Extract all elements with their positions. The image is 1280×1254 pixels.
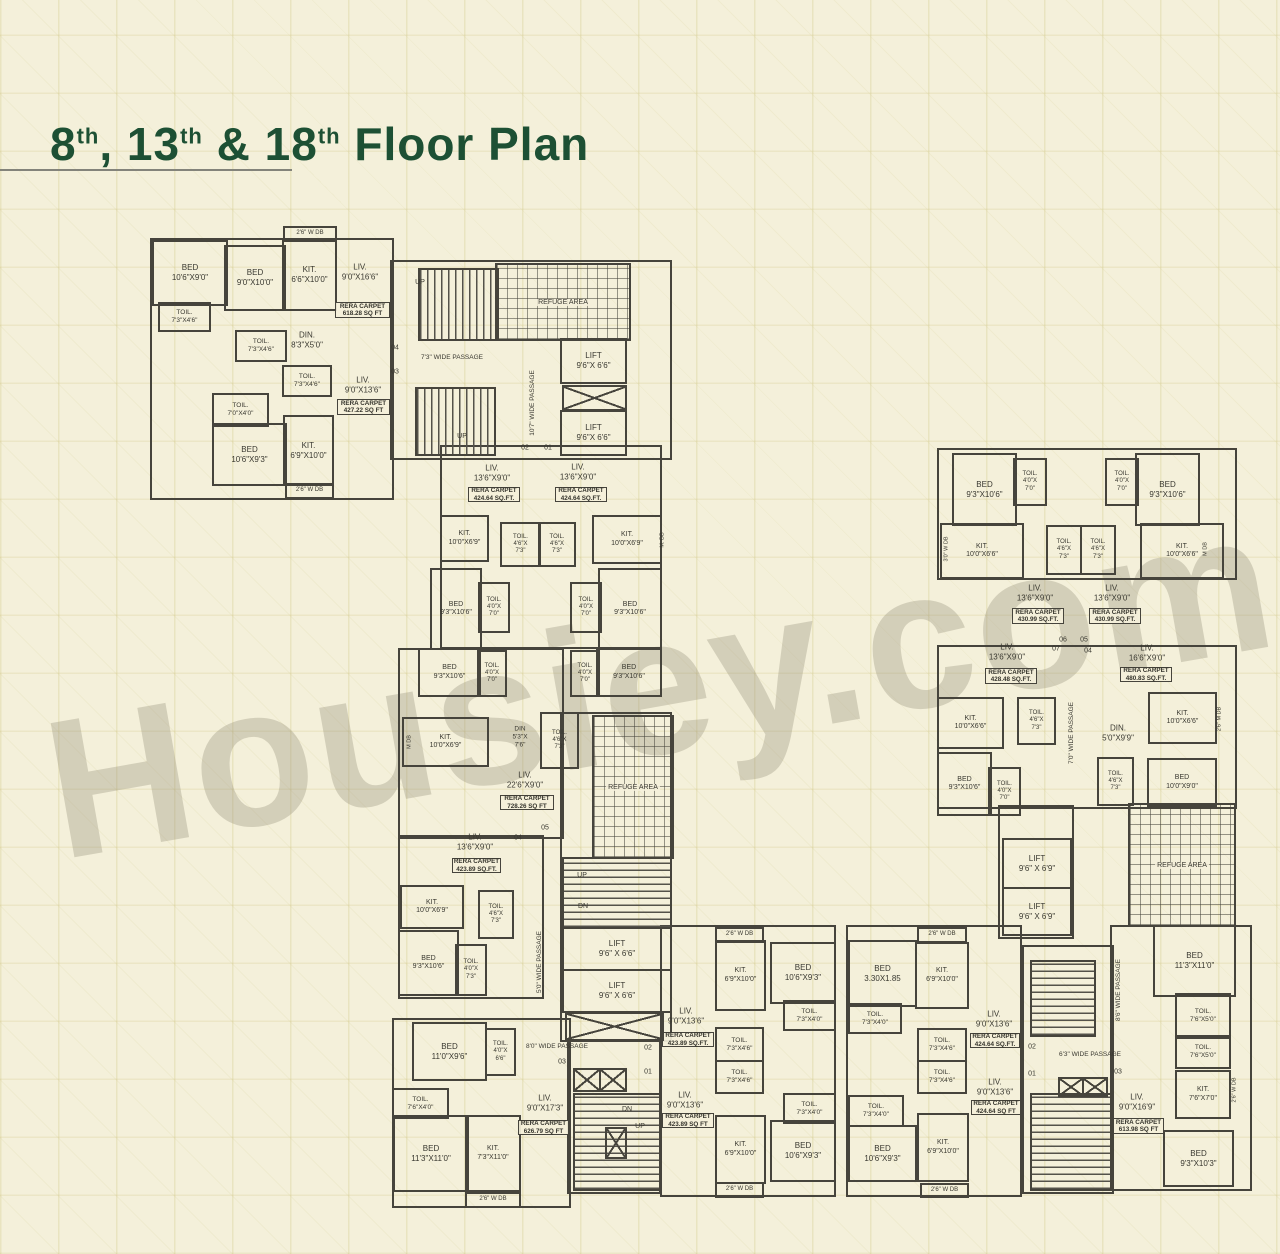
room-toil: TOIL. 4'6"X 7'3" bbox=[1017, 697, 1056, 745]
refuge-area-label: REFUGE AREA bbox=[606, 784, 660, 791]
room-bed: BED 9'3"X10'6" bbox=[952, 453, 1017, 526]
room-kit: KIT. 10'0"X6'6" bbox=[940, 523, 1024, 579]
room-label: TOIL. 4'0"X 7'0" bbox=[997, 781, 1012, 803]
room-label: TOIL. 4'6"X 7'3" bbox=[1108, 771, 1123, 793]
flat-number: 01 bbox=[644, 1069, 652, 1076]
area-label: LIV. 9'0"X13'6" bbox=[345, 375, 381, 394]
rera-carpet-box: RERA CARPET 728.26 SQ FT bbox=[500, 795, 554, 810]
stair-direction-label: UP bbox=[457, 433, 467, 441]
rera-carpet-box: RERA CARPET 424.64 SQ.FT. bbox=[555, 487, 607, 502]
stair-direction-label: DN bbox=[578, 903, 588, 911]
room-label: TOIL. 7'3"X4'6" bbox=[727, 1037, 753, 1053]
room-wdb: 2'6" W DB bbox=[285, 483, 334, 499]
room-bed: BED 9'3"X10'6" bbox=[418, 648, 481, 697]
room-toil: TOIL. 4'6"X 7'3" bbox=[1097, 757, 1134, 806]
area-label: LIV. 13'6"X9'0" bbox=[1094, 583, 1130, 602]
room-label: BED 9'3"X10'6" bbox=[434, 664, 466, 681]
room-toil: TOIL. 7'6"X5'0" bbox=[1175, 993, 1231, 1039]
room-toil: TOIL. 4'6"X 7'3" bbox=[538, 522, 576, 567]
room-label: KIT. 10'0"X6'9" bbox=[449, 530, 481, 547]
lift-room: LIFT 9'6" X 6'6" bbox=[562, 969, 672, 1013]
room-toil: TOIL. 7'3"X4'6" bbox=[917, 1028, 967, 1062]
flat-number: 04 bbox=[1084, 648, 1092, 655]
area-label: LIV. 16'6"X9'0" bbox=[1129, 643, 1165, 662]
room-toil: TOIL. 4'0"X 7'0" bbox=[1013, 458, 1047, 506]
rera-carpet-box: RERA CARPET 618.28 SQ FT bbox=[335, 302, 390, 318]
room-label: BED 9'3"X10'6" bbox=[1149, 480, 1185, 499]
room-label: TOIL. 4'0"X 7'0" bbox=[579, 597, 594, 619]
stair-direction-label: DN bbox=[622, 1106, 632, 1114]
room-label: TOIL. 4'6"X 7'3" bbox=[513, 534, 528, 556]
room-label: KIT. 6'9"X10'0" bbox=[725, 1141, 757, 1158]
room-label: TOIL. 4'0"X 7'0" bbox=[487, 597, 502, 619]
room-label: KIT. 10'0"X6'6" bbox=[1167, 710, 1199, 727]
room-label: TOIL. 4'6"X 7'3" bbox=[550, 534, 565, 556]
elevator-shaft bbox=[1058, 1077, 1084, 1097]
room-label: BED 9'3"X10'3" bbox=[1180, 1149, 1216, 1168]
room-bed: BED 9'3"X10'6" bbox=[598, 568, 662, 650]
room-label: KIT. 6'6"X10'0" bbox=[291, 265, 327, 284]
room-label: BED 10'6"X9'0" bbox=[172, 263, 208, 282]
room-label: KIT. 10'0"X6'9" bbox=[611, 531, 643, 548]
flat-number: 03 bbox=[1114, 1069, 1122, 1076]
room-label: 2'6" W DB bbox=[726, 1186, 753, 1193]
room-label: BED 10'6"X9'3" bbox=[785, 963, 821, 982]
area-label: LIV. 13'6"X9'0" bbox=[1017, 583, 1053, 602]
staircase bbox=[1030, 1093, 1112, 1191]
room-label: BED 9'3"X10'6" bbox=[613, 664, 645, 681]
room-toil: TOIL. 4'6"X 7'3" bbox=[1080, 525, 1116, 575]
area-label: LIV. 9'0"X13'6" bbox=[668, 1006, 704, 1025]
room-label: TOIL. 7'6"X4'0" bbox=[408, 1096, 434, 1112]
room-label: TOIL. 4'6"X 7'3" bbox=[1057, 539, 1072, 561]
stair-direction-label: UP bbox=[415, 279, 425, 287]
lift-room: LIFT 9'6" X 6'6" bbox=[562, 927, 672, 971]
refuge-area: REFUGE AREA bbox=[495, 263, 631, 341]
flat-number: 03 bbox=[391, 369, 399, 376]
room-toil: TOIL. 7'3"X4'0" bbox=[848, 1003, 902, 1034]
room-label: KIT. 10'0"X6'9" bbox=[430, 734, 462, 751]
staircase bbox=[1030, 960, 1096, 1037]
room-bed: BED 10'6"X9'0" bbox=[152, 240, 228, 306]
room-kit: KIT. 6'9"X10'0" bbox=[915, 942, 969, 1009]
room-toil: TOIL. 4'0"X 6'6" bbox=[485, 1028, 516, 1076]
lift-room: LIFT 9'6"X 6'6" bbox=[560, 338, 627, 384]
stair-direction-label: UP bbox=[577, 872, 587, 880]
room-toil: TOIL. 7'3"X4'6" bbox=[158, 302, 211, 332]
room-label: TOIL. 7'3"X4'6" bbox=[248, 338, 274, 354]
room-label: BED 10'6"X9'3" bbox=[231, 445, 267, 464]
stair-direction-label: UP bbox=[635, 1123, 645, 1131]
area-label: DIN. 5'0"X9'9" bbox=[1102, 723, 1134, 742]
rera-carpet-box: RERA CARPET 423.89 SQ.FT. bbox=[452, 858, 501, 873]
area-label: M DB bbox=[1203, 542, 1210, 556]
room-label: KIT. 6'9"X10'0" bbox=[926, 967, 958, 984]
flat-number: 04 bbox=[391, 345, 399, 352]
room-toil: TOIL. 4'6"X 7'3" bbox=[1046, 525, 1082, 575]
room-toil: TOIL. 7'6"X5'0" bbox=[1175, 1035, 1231, 1069]
room-bed: BED 9'3"X10'6" bbox=[430, 568, 482, 650]
elevator-shaft bbox=[565, 1012, 664, 1041]
room-bed: BED 9'3"X10'6" bbox=[937, 752, 992, 816]
room-label: TOIL. 7'0"X4'0" bbox=[228, 402, 254, 418]
room-label: TOIL. 4'0"X 7'3" bbox=[464, 959, 479, 981]
room-toil: TOIL. 4'0"X 7'0" bbox=[988, 767, 1021, 816]
room-label: 2'6" W DB bbox=[931, 1187, 958, 1194]
flat-number: 01 bbox=[544, 445, 552, 452]
lift-label: LIFT 9'6"X 6'6" bbox=[576, 423, 610, 442]
room-label: BED 10'0"X9'0" bbox=[1166, 774, 1198, 791]
room-label: TOIL. 4'6"X 7'3" bbox=[552, 730, 567, 752]
room-label: KIT. 6'9"X10'0" bbox=[290, 441, 326, 460]
room-bed: BED 9'3"X10'6" bbox=[398, 930, 459, 996]
room-bed: BED 9'0"X10'0" bbox=[224, 245, 286, 311]
room-label: TOIL. 4'0"X 6'6" bbox=[493, 1041, 508, 1063]
lift-label: LIFT 9'6"X 6'6" bbox=[576, 351, 610, 370]
room-label: TOIL. 4'0"X 7'0" bbox=[578, 663, 593, 685]
area-label: LIV. 13'6"X9'0" bbox=[474, 463, 510, 482]
room-toil: TOIL. 4'6"X 7'3" bbox=[540, 712, 579, 769]
flat-number: 03 bbox=[558, 1059, 566, 1066]
room-bed: BED 9'3"X10'6" bbox=[1135, 453, 1200, 526]
room-kit: KIT. 10'0"X6'6" bbox=[1140, 523, 1224, 579]
room-label: KIT. 10'0"X6'6" bbox=[955, 715, 987, 732]
room-label: TOIL. 4'0"X 7'0" bbox=[1023, 471, 1038, 493]
room-label: BED 9'3"X10'6" bbox=[949, 776, 981, 793]
room-label: TOIL. 7'3"X4'0" bbox=[862, 1011, 888, 1027]
lift-room: LIFT 9'6" X 6'9" bbox=[1002, 838, 1072, 889]
rera-carpet-box: RERA CARPET 427.22 SQ FT bbox=[337, 399, 390, 415]
flat-number: 07 bbox=[1052, 646, 1060, 653]
lift-label: LIFT 9'6" X 6'6" bbox=[599, 981, 635, 1000]
room-label: BED 9'3"X10'6" bbox=[966, 480, 1002, 499]
flat-number: 01 bbox=[1028, 1071, 1036, 1078]
rera-carpet-box: RERA CARPET 480.83 SQ.FT. bbox=[1120, 667, 1172, 682]
area-label: DIN. 8'3"X5'0" bbox=[291, 330, 323, 349]
room-label: 2'6" W DB bbox=[296, 487, 323, 494]
room-bed: BED 11'0"X9'6" bbox=[412, 1022, 487, 1081]
room-label: BED 9'3"X10'6" bbox=[614, 601, 646, 618]
room-kit: KIT. 6'9"X10'0" bbox=[715, 940, 766, 1011]
room-kit: KIT. 10'0"X6'9" bbox=[402, 717, 489, 767]
room-toil: TOIL. 7'3"X4'0" bbox=[848, 1095, 904, 1127]
room-label: TOIL. 7'3"X4'0" bbox=[797, 1101, 823, 1117]
room-label: KIT. 7'6"X7'0" bbox=[1189, 1086, 1217, 1103]
flat-number: 04 bbox=[514, 835, 522, 842]
room-label: BED 10'6"X9'3" bbox=[785, 1141, 821, 1160]
room-kit: KIT. 6'9"X10'0" bbox=[715, 1115, 766, 1184]
room-toil: TOIL. 4'0"X 7'3" bbox=[455, 944, 487, 996]
room-toil: TOIL. 7'3"X4'6" bbox=[235, 330, 287, 362]
room-label: TOIL. 7'3"X4'0" bbox=[797, 1008, 823, 1024]
room-kit: KIT. 10'0"X6'9" bbox=[400, 885, 464, 929]
area-label: M. DB bbox=[660, 532, 667, 547]
staircase bbox=[418, 268, 499, 341]
room-bed: BED 10'6"X9'3" bbox=[770, 1120, 836, 1182]
room-wdb: 2'6" W DB bbox=[715, 1182, 764, 1198]
room-wdb: 2'6" W DB bbox=[283, 226, 337, 242]
room-wdb: 2'6" W DB bbox=[465, 1192, 521, 1208]
area-label: 8'0" WIDE PASSAGE bbox=[526, 1043, 588, 1051]
area-label: LIV. 13'6"X9'0" bbox=[560, 462, 596, 481]
room-bed: BED 11'3"X11'0" bbox=[393, 1115, 469, 1192]
room-toil: TOIL. 4'0"X 7'0" bbox=[478, 582, 510, 633]
room-label: TOIL. 4'6"X 7'3" bbox=[1029, 710, 1044, 732]
area-label: LIV. 13'6"X9'0" bbox=[457, 832, 493, 851]
area-label: 2'6" M DB bbox=[1217, 707, 1224, 731]
area-label: LIV. 13'6"X9'0" bbox=[989, 642, 1025, 661]
area-label: 6'3" WIDE PASSAGE bbox=[1059, 1051, 1121, 1059]
room-label: TOIL. 4'0"X 7'0" bbox=[485, 663, 500, 685]
room-label: TOIL. 7'3"X4'6" bbox=[172, 309, 198, 325]
room-label: BED 9'0"X10'0" bbox=[237, 268, 273, 287]
room-toil: TOIL. 4'0"X 7'0" bbox=[477, 650, 507, 697]
refuge-area: REFUGE AREA bbox=[1128, 803, 1236, 927]
room-kit: KIT. 6'9"X10'0" bbox=[917, 1113, 969, 1182]
area-label: M DB bbox=[407, 735, 414, 749]
room-label: BED 11'3"X11'0" bbox=[1175, 951, 1215, 970]
room-label: TOIL. 4'6"X 7'3" bbox=[489, 904, 504, 926]
room-label: KIT. 10'0"X6'9" bbox=[416, 899, 448, 916]
area-label: LIV. 9'0"X13'6" bbox=[976, 1009, 1012, 1028]
room-bed: BED 11'3"X11'0" bbox=[1153, 925, 1236, 997]
staircase bbox=[562, 857, 672, 929]
rera-carpet-box: RERA CARPET 423.89 SQ.FT. bbox=[662, 1032, 714, 1047]
room-label: BED 3.30X1.85 bbox=[864, 964, 900, 983]
floor-plan: BED 10'6"X9'0"BED 9'0"X10'0"KIT. 6'6"X10… bbox=[0, 0, 1280, 1254]
room-bed: BED 10'0"X9'0" bbox=[1147, 758, 1217, 807]
room-label: BED 9'3"X10'6" bbox=[413, 955, 445, 972]
room-toil: TOIL. 7'0"X4'0" bbox=[212, 393, 269, 427]
room-bed: BED 10'6"X9'3" bbox=[212, 423, 287, 486]
room-bed: BED 10'6"X9'3" bbox=[848, 1125, 917, 1182]
refuge-area-label: REFUGE AREA bbox=[536, 299, 590, 306]
area-label: 7'3" WIDE PASSAGE bbox=[421, 354, 483, 362]
room-wdb: 2'6" W DB bbox=[920, 1183, 969, 1198]
elevator-shaft bbox=[573, 1068, 601, 1092]
room-toil: TOIL. 7'3"X4'6" bbox=[715, 1060, 764, 1094]
room-label: KIT. 10'0"X6'6" bbox=[1166, 543, 1198, 560]
area-label: DIN 5'3"X 7'6" bbox=[512, 725, 527, 748]
rera-carpet-box: RERA CARPET 424.64 SQ.FT. bbox=[468, 487, 520, 502]
room-label: KIT. 6'9"X10'0" bbox=[725, 967, 757, 984]
room-label: KIT. 10'0"X6'6" bbox=[966, 543, 998, 560]
room-toil: TOIL. 7'3"X4'6" bbox=[715, 1027, 764, 1062]
area-label: LIV. 9'0"X13'6" bbox=[977, 1077, 1013, 1096]
room-label: BED 11'0"X9'6" bbox=[432, 1042, 468, 1061]
room-kit: KIT. 6'6"X10'0" bbox=[282, 238, 337, 311]
area-label: LIV. 9'0"X16'9" bbox=[1119, 1092, 1155, 1111]
rera-carpet-box: RERA CARPET 424.64 SQ FT bbox=[971, 1100, 1021, 1115]
room-toil: TOIL. 7'3"X4'6" bbox=[917, 1060, 967, 1094]
lift-label: LIFT 9'6" X 6'6" bbox=[599, 939, 635, 958]
room-label: KIT. 7'3"X11'0" bbox=[477, 1145, 508, 1162]
room-kit: KIT. 7'6"X7'0" bbox=[1175, 1070, 1231, 1119]
flat-number: 02 bbox=[521, 445, 529, 452]
area-label: 5'0" WIDE PASSAGE bbox=[536, 931, 544, 993]
room-label: BED 11'3"X11'0" bbox=[411, 1144, 451, 1163]
area-label: LIV. 9'0"X13'6" bbox=[667, 1090, 703, 1109]
room-kit: KIT. 7'3"X11'0" bbox=[465, 1115, 521, 1192]
room-kit: KIT. 10'0"X6'9" bbox=[440, 515, 489, 562]
room-toil: TOIL. 7'3"X4'0" bbox=[783, 1000, 836, 1031]
room-label: TOIL. 7'3"X4'0" bbox=[863, 1103, 889, 1119]
room-label: BED 10'6"X9'3" bbox=[864, 1144, 900, 1163]
room-toil: TOIL. 4'6"X 7'3" bbox=[478, 890, 514, 939]
room-kit: KIT. 10'0"X6'9" bbox=[592, 515, 662, 564]
refuge-area-label: REFUGE AREA bbox=[1155, 862, 1209, 869]
room-toil: TOIL. 7'3"X4'6" bbox=[282, 365, 332, 397]
room-kit: KIT. 10'0"X6'6" bbox=[937, 697, 1004, 749]
room-bed: BED 9'3"X10'3" bbox=[1163, 1130, 1234, 1187]
room-label: TOIL. 7'6"X5'0" bbox=[1190, 1008, 1216, 1024]
room-kit: KIT. 10'0"X6'6" bbox=[1148, 692, 1217, 744]
room-toil: TOIL. 4'6"X 7'3" bbox=[500, 522, 541, 567]
staircase bbox=[415, 387, 496, 456]
area-label: 3'0" W DB bbox=[944, 536, 951, 561]
rera-carpet-box: RERA CARPET 626.79 SQ FT bbox=[518, 1120, 569, 1135]
lift-room: LIFT 9'6"X 6'6" bbox=[560, 410, 627, 456]
area-label: LIV. 22'6"X9'0" bbox=[507, 770, 543, 789]
room-label: TOIL. 7'6"X5'0" bbox=[1190, 1044, 1216, 1060]
area-label: 7'0" WIDE PASSAGE bbox=[1068, 702, 1076, 764]
rera-carpet-box: RERA CARPET 430.99 SQ.FT. bbox=[1089, 608, 1141, 624]
flat-number: 02 bbox=[1028, 1044, 1036, 1051]
room-wdb: 2'6" W DB bbox=[917, 927, 967, 943]
rera-carpet-box: RERA CARPET 613.98 SQ FT bbox=[1113, 1118, 1164, 1134]
room-label: TOIL. 7'3"X4'6" bbox=[929, 1037, 955, 1053]
room-label: TOIL. 4'0"X 7'0" bbox=[1115, 471, 1130, 493]
flat-number: 05 bbox=[1080, 637, 1088, 644]
refuge-area: REFUGE AREA bbox=[592, 715, 674, 859]
elevator-shaft bbox=[1082, 1077, 1108, 1097]
flat-number: 06 bbox=[1059, 637, 1067, 644]
area-label: LIV. 9'0"X16'6" bbox=[342, 262, 378, 281]
room-toil: TOIL. 4'0"X 7'0" bbox=[1105, 458, 1139, 506]
room-label: 2'6" W DB bbox=[726, 931, 753, 938]
elevator-shaft bbox=[599, 1068, 627, 1092]
area-label: 8'6" WIDE PASSAGE bbox=[1115, 959, 1123, 1021]
area-label: 2'6" W DB bbox=[1232, 1077, 1239, 1102]
room-kit: KIT. 6'9"X10'0" bbox=[283, 415, 334, 486]
room-label: TOIL. 4'6"X 7'3" bbox=[1091, 539, 1106, 561]
elevator-shaft bbox=[562, 385, 627, 411]
elevator-shaft bbox=[605, 1127, 627, 1159]
flat-number: 05 bbox=[541, 825, 549, 832]
area-label: LIV. 9'0"X17'3" bbox=[527, 1093, 563, 1112]
area-label: 10'7" WIDE PASSAGE bbox=[529, 370, 537, 436]
lift-label: LIFT 9'6" X 6'9" bbox=[1019, 902, 1055, 921]
room-label: KIT. 6'9"X10'0" bbox=[927, 1139, 959, 1156]
rera-carpet-box: RERA CARPET 428.48 SQ.FT. bbox=[985, 668, 1037, 684]
room-label: 2'6" W DB bbox=[296, 230, 323, 237]
room-bed: BED 3.30X1.85 bbox=[848, 940, 917, 1007]
room-bed: BED 9'3"X10'6" bbox=[596, 648, 662, 697]
flat-number: 02 bbox=[644, 1045, 652, 1052]
room-bed: BED 10'6"X9'3" bbox=[770, 942, 836, 1004]
rera-carpet-box: RERA CARPET 430.99 SQ.FT. bbox=[1012, 608, 1064, 624]
room-label: 2'6" W DB bbox=[928, 931, 955, 938]
room-label: 2'6" W DB bbox=[479, 1196, 506, 1203]
room-label: TOIL. 7'3"X4'6" bbox=[727, 1069, 753, 1085]
rera-carpet-box: RERA CARPET 424.64 SQ.FT. bbox=[970, 1033, 1020, 1048]
lift-label: LIFT 9'6" X 6'9" bbox=[1019, 854, 1055, 873]
room-label: TOIL. 7'3"X4'6" bbox=[294, 373, 320, 389]
lift-room: LIFT 9'6" X 6'9" bbox=[1002, 887, 1072, 936]
rera-carpet-box: RERA CARPET 423.89 SQ FT bbox=[662, 1113, 714, 1128]
room-label: TOIL. 7'3"X4'6" bbox=[929, 1069, 955, 1085]
room-label: BED 9'3"X10'6" bbox=[440, 601, 472, 618]
